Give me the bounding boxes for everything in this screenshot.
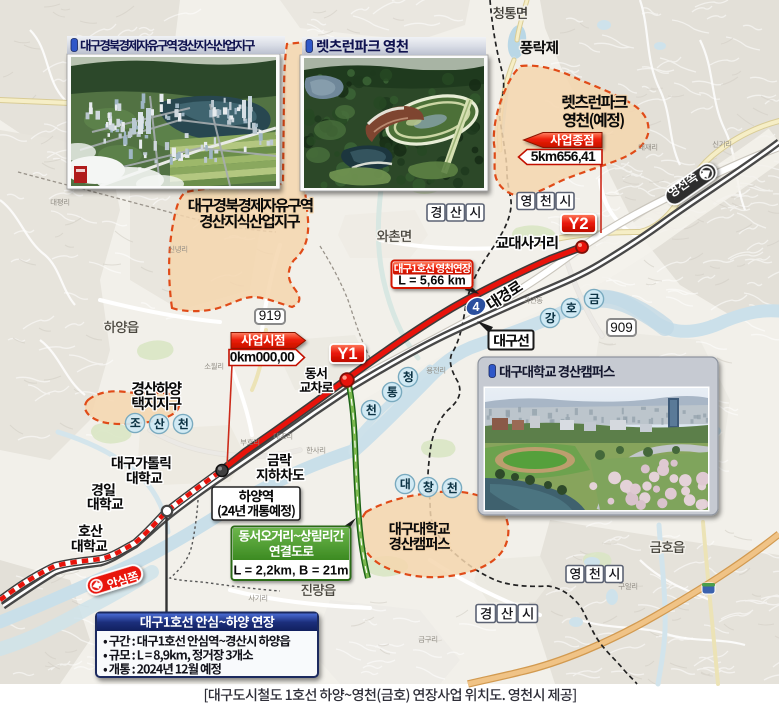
svg-text:909: 909 (610, 320, 633, 335)
svg-text:5km656,41: 5km656,41 (531, 149, 596, 164)
svg-text:0km000,00: 0km000,00 (230, 350, 295, 365)
svg-text:L = 5,66 km: L = 5,66 km (398, 274, 466, 288)
svg-text:919: 919 (259, 308, 282, 323)
svg-text:Y1: Y1 (337, 345, 357, 363)
svg-text:4: 4 (473, 300, 480, 314)
svg-text:L = 2,2km, B = 21m: L = 2,2km, B = 21m (233, 563, 348, 578)
svg-text:Y2: Y2 (568, 215, 588, 233)
